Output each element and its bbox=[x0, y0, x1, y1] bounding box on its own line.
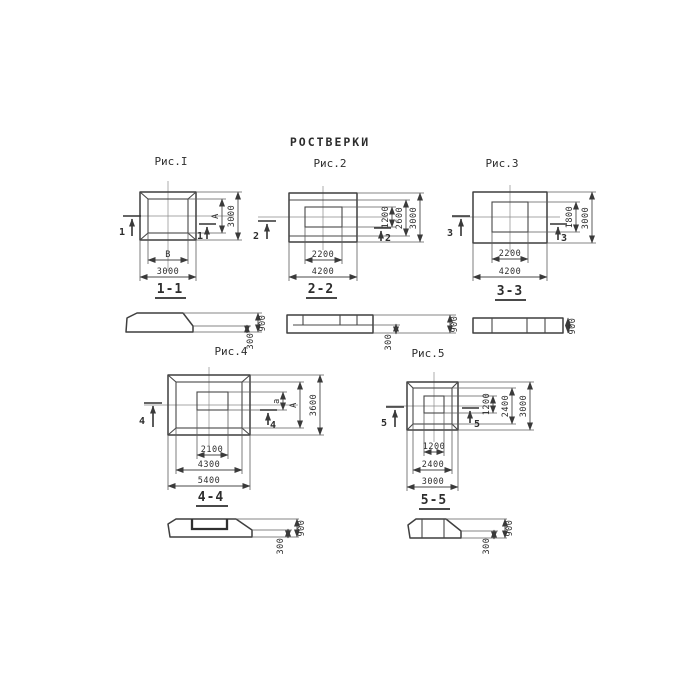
fig4-dim-inner-height: а bbox=[272, 398, 282, 404]
section-4-4: 300 900 bbox=[168, 519, 307, 554]
fig1-caption: Рис.I bbox=[154, 155, 187, 168]
fig3-dim-outer-height: 3000 bbox=[581, 207, 591, 229]
section-3-3: 900 bbox=[473, 318, 578, 335]
fig4-dim-mid-height: А bbox=[289, 402, 299, 408]
fig3-dim-outer-width: 4200 bbox=[499, 267, 521, 277]
fig3-cut-number-right: 3 bbox=[561, 233, 567, 244]
fig3-cut-number-left: 3 bbox=[447, 228, 453, 239]
fig5-section-label: 5-5 bbox=[421, 493, 447, 508]
figure-5-plan: Рис.5 1200 2400 3000 1200 2400 3000 5 5 … bbox=[381, 347, 534, 509]
fig1-dim-inner-height: А bbox=[211, 213, 221, 219]
fig4-dim-outer-height: 3600 bbox=[309, 394, 319, 416]
fig5-dim-mid-width: 2400 bbox=[422, 460, 444, 470]
fig3-centerlines bbox=[452, 185, 560, 252]
fig2-section-label: 2-2 bbox=[308, 282, 334, 297]
drawing-sheet: РОСТВЕРКИ Рис.I А 3000 В 3000 1 1 1-1 30… bbox=[0, 0, 700, 700]
fig5-dim-outer-width: 3000 bbox=[422, 477, 444, 487]
fig2-caption: Рис.2 bbox=[313, 157, 346, 170]
section3-joint-lines bbox=[492, 318, 545, 333]
section5-joint-lines bbox=[422, 519, 444, 538]
fig1-cut-number-right: 1 bbox=[197, 231, 203, 242]
drawing-canvas: РОСТВЕРКИ Рис.I А 3000 В 3000 1 1 1-1 30… bbox=[0, 0, 700, 700]
section-5-5: 300 900 bbox=[408, 519, 515, 554]
section5-dim-total: 900 bbox=[505, 520, 515, 537]
fig2-dim-inner-height: 1200 bbox=[381, 206, 391, 228]
section1-extension-lines bbox=[183, 313, 262, 332]
fig1-cut-number-left: 1 bbox=[119, 227, 125, 238]
fig4-caption: Рис.4 bbox=[214, 345, 247, 358]
fig2-dim-mid-height: 2600 bbox=[395, 207, 405, 229]
figure-1-plan: Рис.I А 3000 В 3000 1 1 1-1 bbox=[119, 155, 242, 298]
sheet-title: РОСТВЕРКИ bbox=[290, 135, 370, 149]
section3-body bbox=[473, 318, 563, 333]
fig5-dim-mid-height: 2400 bbox=[501, 395, 511, 417]
fig3-dim-inner-height: 1800 bbox=[565, 206, 575, 228]
fig1-dim-inner-width: В bbox=[165, 250, 171, 260]
fig4-inner-rect bbox=[197, 392, 228, 410]
section4-extension-lines bbox=[236, 519, 299, 537]
figure-4-plan: Рис.4 а А 3600 2100 4300 5400 4 4 4-4 bbox=[139, 345, 324, 506]
fig3-dim-inner-width: 2200 bbox=[499, 249, 521, 259]
section2-dim-total: 900 bbox=[450, 316, 460, 333]
fig4-extension-lines bbox=[168, 375, 324, 490]
figure-3-plan: Рис.3 1800 3000 2200 4200 3 3 3-3 bbox=[447, 157, 596, 300]
fig5-dim-outer-height: 3000 bbox=[519, 395, 529, 417]
section1-dim-total: 900 bbox=[258, 315, 268, 332]
fig3-section-label: 3-3 bbox=[497, 284, 523, 299]
fig4-cut-number-left: 4 bbox=[139, 416, 145, 427]
section1-body bbox=[126, 313, 193, 332]
fig5-cut-number-left: 5 bbox=[381, 418, 387, 429]
fig5-extension-lines bbox=[407, 382, 534, 491]
fig2-cut-number-left: 2 bbox=[253, 231, 259, 242]
fig1-dim-outer-height: 3000 bbox=[227, 205, 237, 227]
section4-recess bbox=[192, 519, 227, 529]
fig4-cut-number-right: 4 bbox=[270, 420, 276, 431]
fig3-caption: Рис.3 bbox=[485, 157, 518, 170]
fig2-dim-outer-height: 3000 bbox=[409, 207, 419, 229]
section5-dim-step: 300 bbox=[482, 538, 492, 555]
fig4-dim-mid-width: 4300 bbox=[198, 460, 220, 470]
fig5-dim-inner-width: 1200 bbox=[423, 442, 445, 452]
section2-extension-lines bbox=[373, 315, 456, 333]
fig2-dim-inner-width: 2200 bbox=[312, 250, 334, 260]
fig4-centerlines bbox=[144, 367, 298, 445]
section4-dim-step: 300 bbox=[276, 538, 286, 555]
section5-body bbox=[408, 519, 461, 538]
section-2-2: 300 900 bbox=[287, 315, 460, 350]
fig2-cut-number-right: 2 bbox=[385, 233, 391, 244]
fig2-centerlines bbox=[258, 186, 388, 250]
fig2-dim-outer-width: 4200 bbox=[312, 267, 334, 277]
fig4-dim-inner-width: 2100 bbox=[201, 445, 223, 455]
section4-dim-total: 900 bbox=[297, 520, 307, 537]
fig1-section-label: 1-1 bbox=[157, 282, 183, 297]
fig1-dim-outer-width: 3000 bbox=[157, 267, 179, 277]
section2-dim-step: 300 bbox=[384, 334, 394, 351]
section-1-1: 300 900 bbox=[126, 313, 268, 349]
section2-body bbox=[287, 315, 373, 333]
fig4-dim-outer-width: 5400 bbox=[198, 476, 220, 486]
section3-dim-total: 900 bbox=[568, 318, 578, 335]
fig5-caption: Рис.5 bbox=[411, 347, 444, 360]
section2-recess-lines bbox=[293, 315, 373, 325]
section5-extension-lines bbox=[446, 519, 507, 538]
fig4-section-label: 4-4 bbox=[198, 490, 224, 505]
figure-2-plan: Рис.2 1200 2600 3000 2200 4200 2 2 2-2 bbox=[253, 157, 424, 298]
fig5-dim-inner-height: 1200 bbox=[482, 393, 492, 415]
fig5-cut-number-right: 5 bbox=[474, 419, 480, 430]
